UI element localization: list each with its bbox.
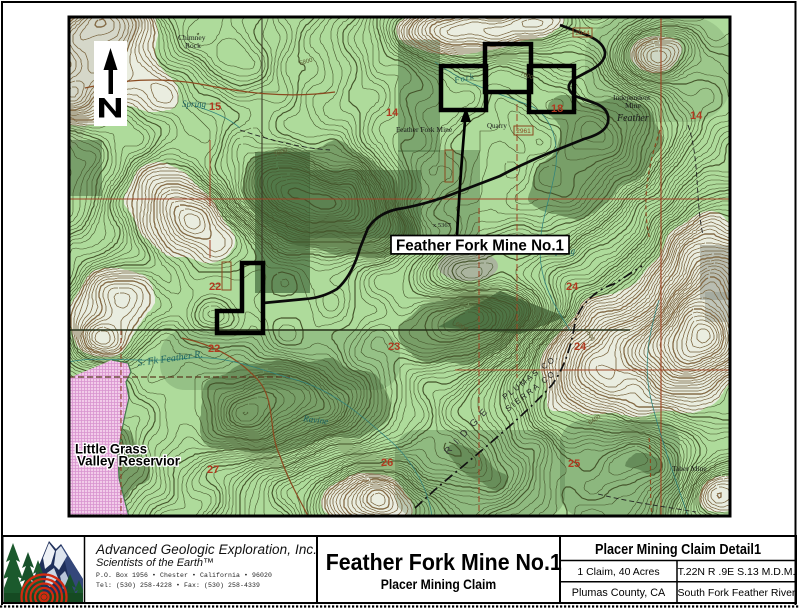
svg-text:23: 23 — [388, 341, 400, 353]
svg-text:18: 18 — [551, 103, 563, 115]
svg-text:25: 25 — [568, 458, 580, 470]
svg-text:22: 22 — [209, 281, 221, 293]
svg-text:Valley Reservior: Valley Reservior — [77, 454, 181, 469]
svg-text:26: 26 — [381, 457, 393, 469]
svg-text:15: 15 — [209, 101, 221, 113]
svg-text:24: 24 — [566, 281, 579, 293]
svg-text:14: 14 — [690, 110, 703, 122]
svg-text:24: 24 — [574, 341, 587, 353]
svg-text:Mine: Mine — [625, 101, 642, 110]
svg-text:Feather Fork Mine No.1: Feather Fork Mine No.1 — [396, 237, 564, 254]
svg-text:14: 14 — [386, 107, 399, 119]
svg-text:Taber Mine: Taber Mine — [672, 464, 707, 473]
svg-text:Feather Fork Mine: Feather Fork Mine — [396, 125, 453, 134]
svg-text:x 5367: x 5367 — [433, 222, 452, 229]
svg-text:Rock: Rock — [185, 41, 201, 50]
svg-text:Quarry: Quarry — [487, 122, 507, 130]
svg-text:2944: 2944 — [575, 30, 590, 37]
svg-text:Spring: Spring — [182, 99, 207, 109]
svg-text:27: 27 — [207, 464, 219, 476]
svg-text:22: 22 — [208, 343, 220, 355]
svg-text:Feather: Feather — [616, 113, 649, 124]
svg-text:2961: 2961 — [516, 128, 531, 135]
